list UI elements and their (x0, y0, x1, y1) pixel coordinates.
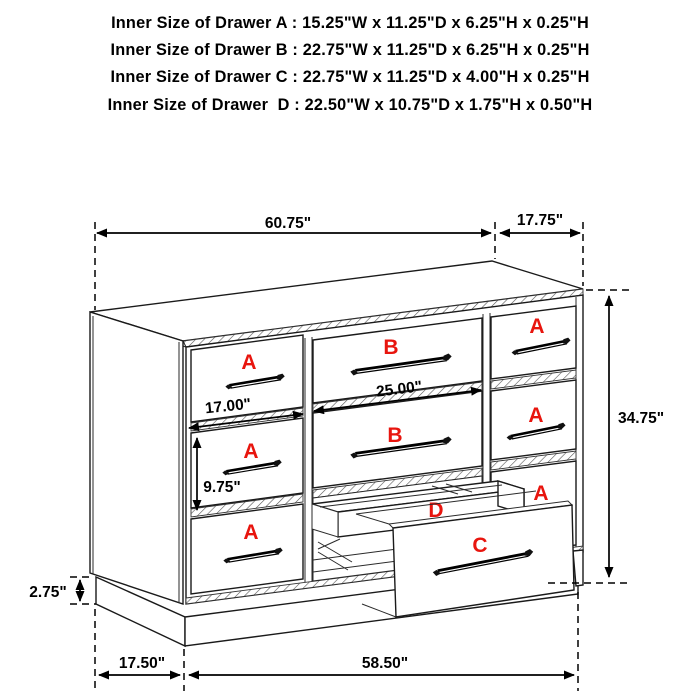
drawer-c-label: C (472, 534, 487, 557)
height-label: 34.75" (618, 410, 664, 427)
cabinet-left-panel (90, 312, 183, 604)
dresser-spec-sheet: Inner Size of Drawer A : 15.25"W x 11.25… (0, 0, 700, 700)
drawer-a-label: A (528, 404, 543, 427)
drawer-a-label: A (243, 521, 258, 544)
dresser-diagram: 60.75" 17.75" (0, 0, 700, 700)
drawer-a-label: A (529, 315, 544, 338)
base-depth-label: 17.50" (119, 655, 165, 672)
drawer-a-right-2: A (491, 380, 576, 460)
base-width-label: 58.50" (362, 655, 408, 672)
base-height-label: 2.75" (29, 584, 67, 601)
dim-top-depth: 17.75" (500, 212, 580, 233)
top-depth-label: 17.75" (517, 212, 563, 229)
dim-base-height: 2.75" (29, 577, 96, 604)
drawer-a-right-1: A (491, 306, 576, 379)
drawer-a-label: A (533, 482, 548, 505)
drawer-a-label: A (243, 440, 258, 463)
drawer-b-label: B (387, 424, 402, 447)
drawer-b-label: B (383, 336, 398, 359)
drawer-a-height-label: 9.75" (203, 479, 241, 496)
drawer-a-label: A (241, 351, 256, 374)
drawer-a-left-3: A (191, 504, 303, 594)
top-width-label: 60.75" (265, 215, 311, 232)
